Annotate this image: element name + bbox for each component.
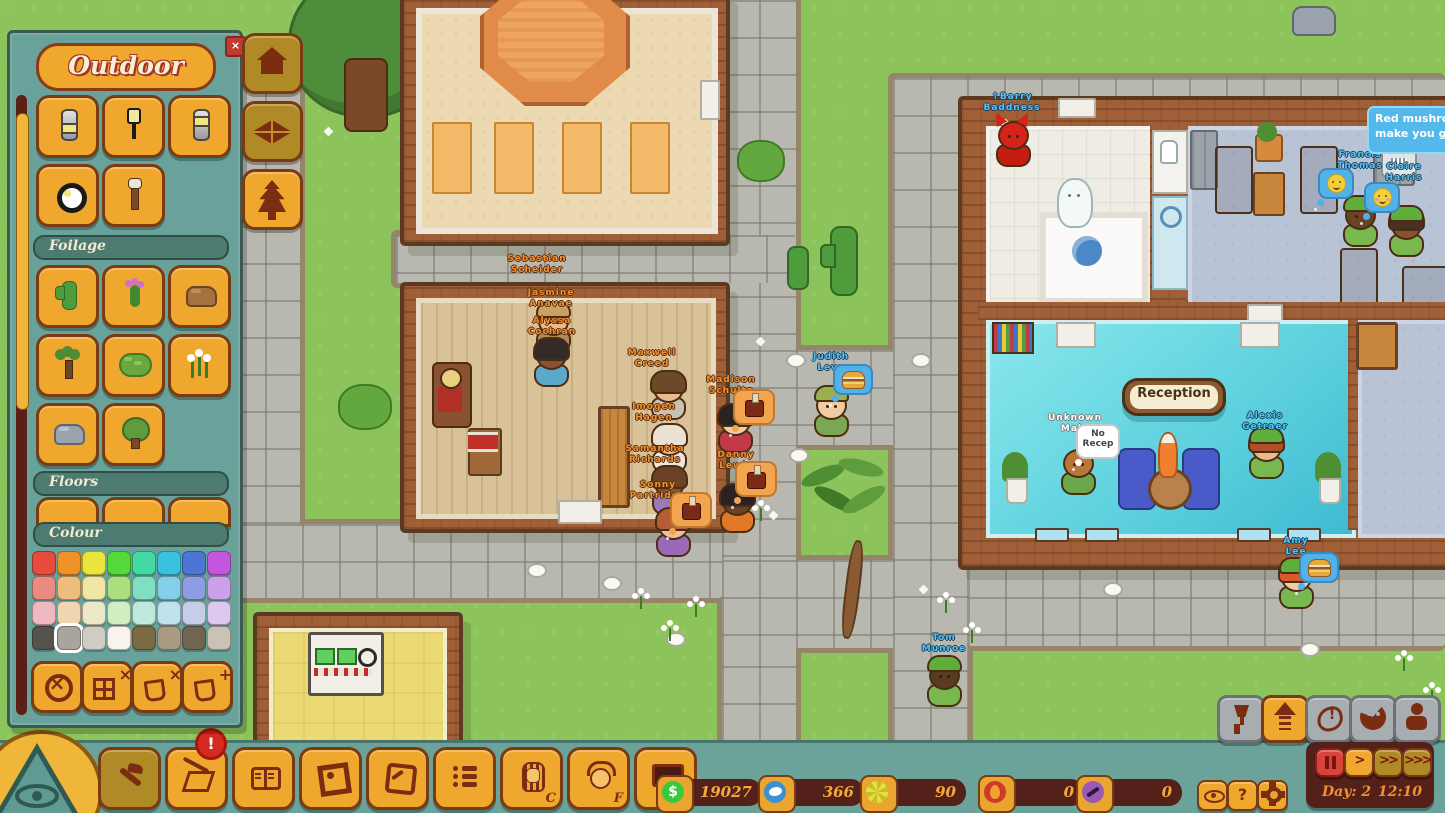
character-name: ImogenHagen xyxy=(579,402,729,424)
character-name: UnknownMale xyxy=(1000,413,1150,435)
bucket-plus-glyph: + xyxy=(198,665,232,684)
smiley-bubble xyxy=(1318,168,1354,199)
outdoor-panel: × Outdoor Foilage Floors Colour ×××+ xyxy=(7,30,243,728)
podium-banner xyxy=(468,432,498,452)
colour-swatch[interactable] xyxy=(32,601,56,625)
seated-person[interactable] xyxy=(440,368,462,389)
time-label: 12:10 xyxy=(1378,784,1422,800)
cylinder-light-icon xyxy=(51,107,85,141)
pillar-light-icon xyxy=(183,107,217,141)
bucket-x-glyph: × xyxy=(148,665,182,684)
action-clear[interactable]: × xyxy=(31,661,83,713)
foilage-rock-brown[interactable] xyxy=(168,265,231,328)
foilage-flowers-white[interactable] xyxy=(168,334,231,397)
status-fragile-button[interactable] xyxy=(1217,695,1265,743)
speed-fastest-button[interactable]: >>> xyxy=(1402,748,1432,777)
money-icon: $ xyxy=(656,775,694,813)
category-floors-button[interactable] xyxy=(242,101,303,162)
colour-swatch[interactable] xyxy=(132,576,156,600)
colour-swatch[interactable] xyxy=(32,576,56,600)
side-table xyxy=(1056,322,1096,348)
cactus-small xyxy=(787,246,809,290)
play-glyph: > xyxy=(1346,753,1372,768)
staff-face-letter: F xyxy=(614,791,623,806)
settings-button[interactable] xyxy=(1257,780,1288,811)
staff-face-icon xyxy=(582,759,616,793)
colour-swatch[interactable] xyxy=(107,626,131,650)
colour-swatch[interactable] xyxy=(207,576,231,600)
ghost-face xyxy=(1068,194,1071,197)
character-name: AlyssaCochran xyxy=(477,316,627,338)
no-reception-bubble: NoRecep xyxy=(1076,424,1120,459)
character[interactable] xyxy=(532,338,568,388)
toolbar-pharaoh-button[interactable]: C xyxy=(500,747,563,810)
foilage-cactus[interactable] xyxy=(36,265,99,328)
mushroom-tooltip: Red mushroo make you grow xyxy=(1367,106,1445,154)
zones-icon xyxy=(180,759,214,793)
panel-strip xyxy=(314,668,372,676)
character-name: AlexisGetraer xyxy=(1190,411,1340,433)
tool-cylinder-light[interactable] xyxy=(36,95,99,158)
colour-swatch[interactable] xyxy=(57,551,81,575)
burger-icon xyxy=(842,371,865,389)
injury-icon xyxy=(1398,699,1436,735)
hunger-glyph: ! xyxy=(1313,705,1351,723)
bucket-x-icon: × xyxy=(140,669,174,703)
colour-swatch[interactable] xyxy=(132,601,156,625)
hammer-icon xyxy=(113,759,147,793)
panel-title: Outdoor xyxy=(36,43,216,91)
bird-value: 366 xyxy=(823,783,854,801)
pharaoh-letter: C xyxy=(546,791,556,806)
foilage-tree[interactable] xyxy=(102,403,165,466)
tool-pillar-light[interactable] xyxy=(168,95,231,158)
tool-torch[interactable] xyxy=(102,164,165,227)
settings-icon xyxy=(1261,782,1285,806)
throne-cushion xyxy=(438,386,462,412)
colour-swatch[interactable] xyxy=(207,551,231,575)
character[interactable] xyxy=(1247,430,1283,480)
stone-path xyxy=(968,560,1445,646)
furnace-icon xyxy=(745,400,764,417)
character-name: JudithLevy xyxy=(756,352,906,374)
faction-logo[interactable] xyxy=(0,730,103,813)
tile-x-glyph: × xyxy=(98,665,132,684)
money-value: 19027 xyxy=(700,783,752,801)
cactus-arm xyxy=(820,244,836,268)
scrollbar-thumb[interactable] xyxy=(16,113,29,410)
character-name: AmyLee xyxy=(1221,536,1371,558)
section-foilage: Foilage xyxy=(33,235,229,260)
bookshelf xyxy=(992,322,1034,354)
telescope-glyph xyxy=(1086,786,1100,797)
status-mood-button[interactable] xyxy=(1349,695,1397,743)
status-injury-button[interactable] xyxy=(1393,695,1441,743)
white-flower xyxy=(688,596,704,618)
burger-bubble xyxy=(1299,552,1339,583)
colour-swatch[interactable] xyxy=(207,601,231,625)
tooltip-line-2: make you grow xyxy=(1375,127,1445,140)
compass-icon xyxy=(381,759,415,793)
palm-frond xyxy=(837,455,885,481)
section-colour: Colour xyxy=(33,522,229,547)
tasks-icon xyxy=(448,759,482,793)
foilage-joshua-tree[interactable] xyxy=(36,334,99,397)
colour-swatch[interactable] xyxy=(57,601,81,625)
bird-symbol xyxy=(764,781,786,803)
table-cone xyxy=(1158,432,1178,478)
colour-swatch[interactable] xyxy=(57,576,81,600)
colour-swatch[interactable] xyxy=(157,626,181,650)
colour-swatch[interactable] xyxy=(132,626,156,650)
eye-pyramid-icon xyxy=(0,730,95,813)
toilet-icon xyxy=(1160,140,1178,164)
money-symbol: $ xyxy=(662,781,684,803)
hotel-inner-wall xyxy=(978,302,1445,320)
prayer-mat xyxy=(432,122,472,194)
colour-swatch[interactable] xyxy=(32,626,56,650)
character-devil[interactable] xyxy=(994,118,1030,168)
bush-icon xyxy=(117,346,151,380)
fastest-glyph: >>> xyxy=(1404,753,1430,768)
colour-swatch[interactable] xyxy=(182,601,206,625)
bed xyxy=(1215,146,1253,214)
toolbar-hammer-button[interactable] xyxy=(98,747,161,810)
hunger-icon: ! xyxy=(1310,699,1348,735)
foilage-flower-cactus[interactable] xyxy=(102,265,165,328)
flowers-white-icon xyxy=(183,346,217,380)
mood-icon xyxy=(1354,699,1392,735)
window xyxy=(1035,528,1069,542)
cactus-icon xyxy=(51,277,85,311)
pinwheel-icon xyxy=(860,775,898,813)
furnace-icon xyxy=(747,472,766,489)
colour-swatch[interactable] xyxy=(82,626,106,650)
colour-swatch[interactable] xyxy=(57,626,81,650)
lobby-plant-pot xyxy=(1319,478,1341,504)
ground-light xyxy=(527,563,547,578)
toolbar-tasks-button[interactable] xyxy=(433,747,496,810)
locker xyxy=(1190,130,1218,190)
torch-icon xyxy=(117,176,151,210)
telescope-icon xyxy=(1076,775,1114,813)
ground-light xyxy=(911,353,931,368)
speed-pause-button[interactable] xyxy=(1315,748,1345,777)
ground-light xyxy=(1103,582,1123,597)
tool-street-lamp[interactable] xyxy=(102,95,165,158)
upgrade-icon xyxy=(1266,699,1304,735)
floors-icon xyxy=(245,107,300,153)
furnace-icon xyxy=(682,503,701,520)
burger-icon xyxy=(1308,559,1331,577)
action-bucket-plus[interactable]: + xyxy=(181,661,233,713)
character-name: MadisonSchultz xyxy=(656,375,806,397)
colour-swatch[interactable] xyxy=(107,601,131,625)
colour-swatch[interactable] xyxy=(182,576,206,600)
street-lamp-icon xyxy=(117,107,151,141)
panel-screen xyxy=(315,648,335,665)
stone-path xyxy=(228,524,722,598)
character-hat xyxy=(927,655,962,672)
nightstand xyxy=(1253,172,1285,216)
door xyxy=(700,80,720,120)
colour-swatch[interactable] xyxy=(82,551,106,575)
frame-icon xyxy=(314,759,348,793)
toolbar-compass-button[interactable] xyxy=(366,747,429,810)
colour-swatch[interactable] xyxy=(182,551,206,575)
shower-icon xyxy=(1160,206,1182,228)
character-hair xyxy=(533,337,570,361)
wardrobe xyxy=(1356,322,1398,370)
flame-glyph xyxy=(990,785,1000,799)
colour-swatch[interactable] xyxy=(182,626,206,650)
telescope-symbol xyxy=(1082,781,1104,803)
pinwheel-symbol xyxy=(866,781,888,803)
ghost-body xyxy=(1057,178,1093,228)
flower-cactus-icon xyxy=(117,277,151,311)
burger-bubble xyxy=(833,364,873,395)
white-flower xyxy=(938,592,954,614)
prayer-mat xyxy=(562,122,602,194)
help-button[interactable]: ? xyxy=(1227,780,1258,811)
speed-fast-button[interactable]: >> xyxy=(1373,748,1403,777)
action-tile-x[interactable]: × xyxy=(81,661,133,713)
category-nature-button[interactable] xyxy=(242,169,303,230)
lobby-plant-pot xyxy=(1006,478,1028,504)
foilage-bush[interactable] xyxy=(102,334,165,397)
home-icon xyxy=(245,39,300,85)
panel-screen xyxy=(337,648,357,665)
nature-icon xyxy=(245,175,300,221)
tooltip-line-1: Red mushroo xyxy=(1375,112,1445,125)
colour-swatch[interactable] xyxy=(157,576,181,600)
character-name: TomMunroe xyxy=(869,633,1019,655)
colour-swatch[interactable] xyxy=(107,576,131,600)
yarn-ball xyxy=(1072,236,1102,266)
fire-icon xyxy=(978,775,1016,813)
speed-play-button[interactable]: > xyxy=(1344,748,1374,777)
ground-light xyxy=(1300,642,1320,657)
toolbar-journal-button[interactable] xyxy=(232,747,295,810)
help-glyph: ? xyxy=(1229,785,1256,804)
white-flower xyxy=(662,620,678,642)
rock-gray-icon xyxy=(51,415,85,449)
clear-icon: × xyxy=(40,669,74,703)
character[interactable] xyxy=(925,658,961,708)
journal-icon xyxy=(247,759,281,793)
character-name: JasmineAnavae xyxy=(476,288,626,310)
colour-swatch[interactable] xyxy=(32,551,56,575)
colour-swatch[interactable] xyxy=(82,601,106,625)
smiley-icon xyxy=(1327,174,1346,193)
rock xyxy=(1292,6,1336,36)
side-table xyxy=(1240,322,1280,348)
bush xyxy=(737,140,785,182)
blush-bubble xyxy=(1364,182,1400,213)
clear-glyph: × xyxy=(40,671,74,695)
panel-dial xyxy=(358,648,377,667)
colour-swatch[interactable] xyxy=(82,576,106,600)
big-tree-trunk xyxy=(344,58,388,132)
fire-value: 0 xyxy=(1064,783,1074,801)
furnace-bubble xyxy=(733,389,775,425)
character-name: SebastianScheider xyxy=(462,254,612,276)
status-hunger-button[interactable]: ! xyxy=(1305,695,1353,743)
status-upgrade-button[interactable] xyxy=(1261,695,1309,743)
prayer-mat xyxy=(494,122,534,194)
view-button[interactable] xyxy=(1197,780,1228,811)
category-home-button[interactable] xyxy=(242,33,303,94)
colour-swatch[interactable] xyxy=(157,601,181,625)
pause-icon xyxy=(1317,750,1343,775)
fire-symbol xyxy=(984,781,1006,803)
fast-glyph: >> xyxy=(1375,753,1401,768)
tool-ground-light[interactable] xyxy=(36,164,99,227)
ground-light-icon xyxy=(51,176,85,210)
view-icon xyxy=(1201,782,1225,806)
bucket-plus-icon: + xyxy=(190,669,224,703)
colour-swatch[interactable] xyxy=(132,551,156,575)
action-bucket-x[interactable]: × xyxy=(131,661,183,713)
joshua-tree-icon xyxy=(51,346,85,380)
character[interactable] xyxy=(1387,208,1423,258)
rock-brown-icon xyxy=(183,277,217,311)
bush xyxy=(338,384,392,430)
door xyxy=(558,500,602,524)
prayer-mat xyxy=(630,122,670,194)
tile-x-icon: × xyxy=(90,669,124,703)
sparkle xyxy=(324,127,334,137)
character-name: ↑BarryBaddness xyxy=(937,92,1087,114)
colour-swatch[interactable] xyxy=(107,551,131,575)
white-flower xyxy=(1396,650,1412,672)
white-flower xyxy=(633,588,649,610)
character-ghost[interactable] xyxy=(1055,178,1091,228)
game-viewport: Reception Red mushroo make you grow Seba… xyxy=(0,0,1445,813)
day-label: Day: 2 xyxy=(1322,784,1371,800)
pinwheel-value: 90 xyxy=(935,783,956,801)
character[interactable] xyxy=(812,388,848,438)
furnace-bubble xyxy=(670,492,712,528)
ground-light xyxy=(602,576,622,591)
plant xyxy=(1257,122,1277,142)
foilage-rock-gray[interactable] xyxy=(36,403,99,466)
reception-sign-label: Reception xyxy=(1130,385,1218,409)
section-floors: Floors xyxy=(33,471,229,496)
blush-icon xyxy=(1373,188,1392,207)
toolbar-frame-button[interactable] xyxy=(299,747,362,810)
colour-swatch[interactable] xyxy=(207,626,231,650)
pharaoh-icon xyxy=(515,759,549,793)
furnace-bubble xyxy=(735,461,777,497)
colour-swatch[interactable] xyxy=(157,551,181,575)
window xyxy=(1085,528,1119,542)
fragile-icon xyxy=(1222,699,1260,735)
bird-glyph xyxy=(769,787,782,796)
toolbar-staff-face-button[interactable]: F xyxy=(567,747,630,810)
tree-icon xyxy=(117,415,151,449)
telescope-value: 0 xyxy=(1162,783,1172,801)
character-name: MaxwellCreed xyxy=(577,348,727,370)
alert-badge: ! xyxy=(195,728,227,760)
bird-icon xyxy=(758,775,796,813)
